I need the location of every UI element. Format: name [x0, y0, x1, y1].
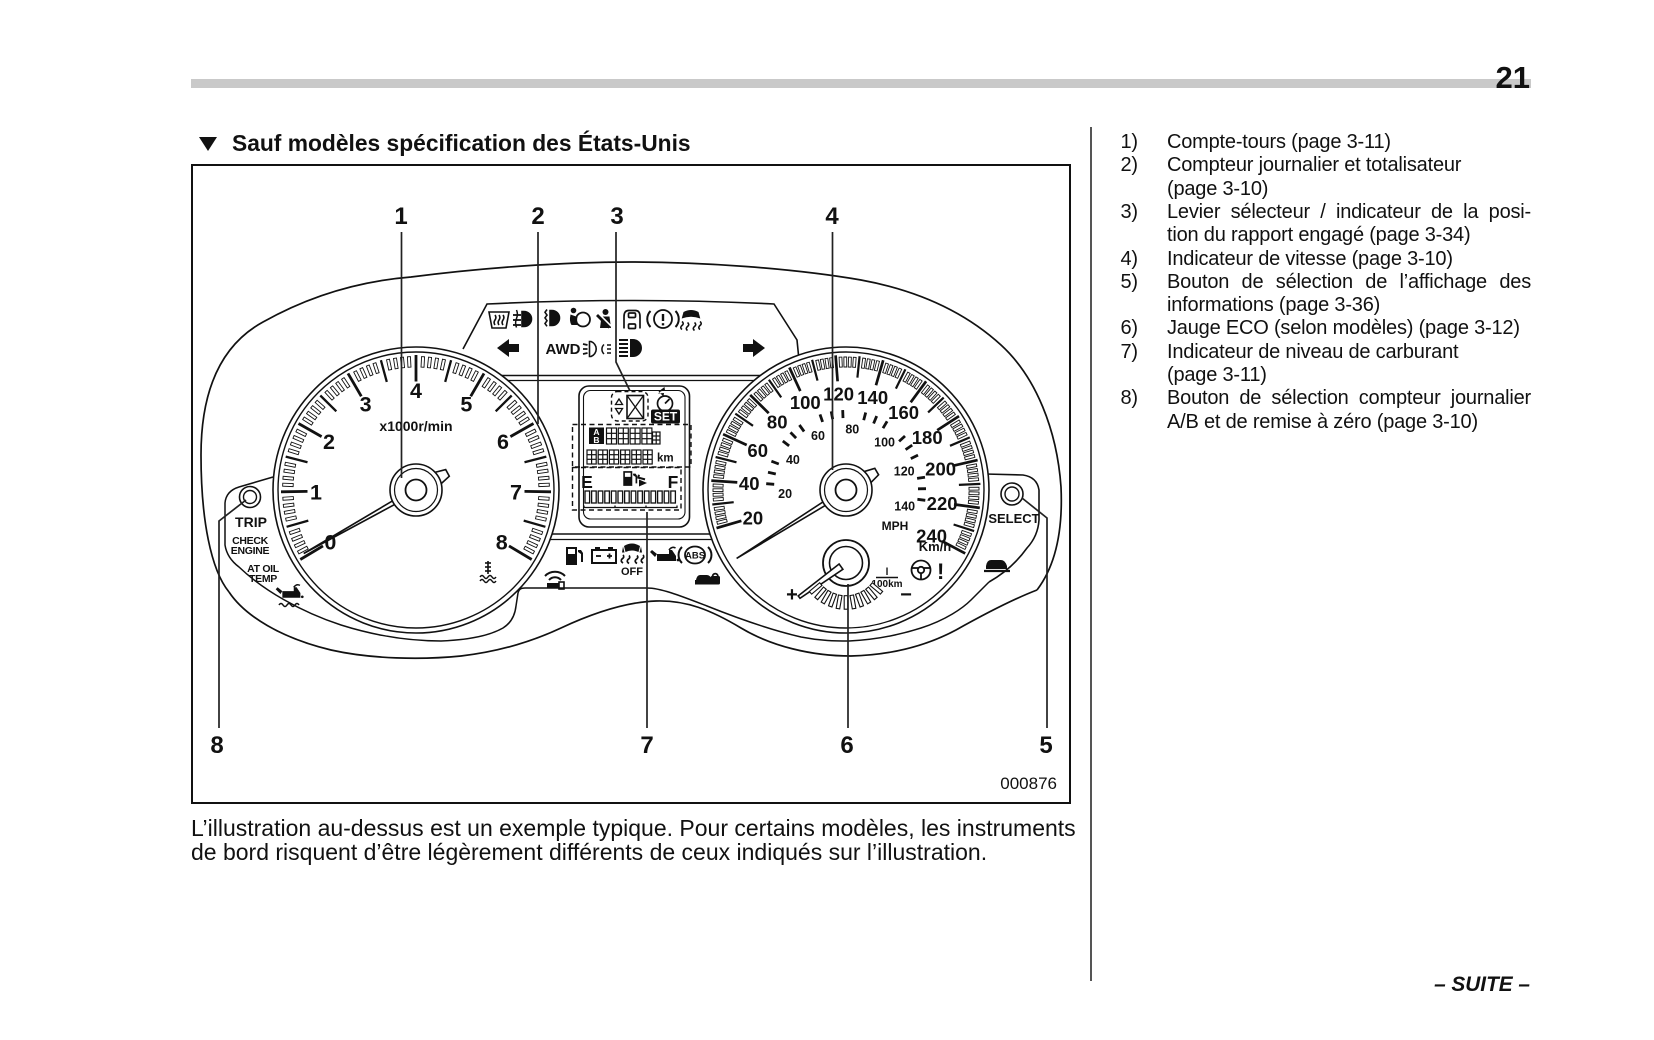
svg-text:F: F [668, 472, 679, 492]
svg-text:E: E [581, 472, 593, 492]
svg-text:0: 0 [324, 531, 336, 555]
svg-text:6: 6 [497, 430, 509, 454]
svg-text:SET: SET [654, 410, 678, 424]
svg-text:200: 200 [925, 459, 956, 480]
svg-text:100: 100 [790, 392, 821, 413]
svg-text:120: 120 [823, 383, 854, 404]
svg-text:2: 2 [531, 203, 544, 230]
svg-text:1: 1 [310, 480, 322, 504]
svg-text:180: 180 [912, 427, 943, 448]
svg-text:ABS: ABS [685, 551, 705, 562]
svg-text:7: 7 [640, 732, 653, 759]
svg-text:80: 80 [767, 412, 788, 433]
svg-text:2: 2 [323, 430, 335, 454]
svg-text:3: 3 [360, 393, 372, 417]
svg-text:60: 60 [811, 429, 825, 443]
svg-text:TRIP: TRIP [235, 514, 267, 530]
svg-text:SELECT: SELECT [988, 511, 1039, 526]
svg-text:140: 140 [857, 387, 888, 408]
svg-text:160: 160 [888, 402, 919, 423]
svg-text:Km/h: Km/h [919, 539, 952, 554]
svg-text:4: 4 [410, 379, 422, 403]
svg-text:5: 5 [1039, 732, 1052, 759]
svg-text:20: 20 [743, 507, 764, 528]
svg-text:3: 3 [610, 203, 623, 230]
svg-text:60: 60 [747, 440, 768, 461]
svg-text:x1000r/min: x1000r/min [379, 418, 452, 434]
svg-text:7: 7 [510, 480, 522, 504]
svg-text:80: 80 [845, 422, 859, 436]
svg-text:120: 120 [894, 465, 915, 479]
svg-text:140: 140 [894, 500, 915, 514]
svg-text:MPH: MPH [882, 519, 909, 533]
svg-text:km: km [657, 453, 674, 465]
svg-text:B: B [593, 435, 599, 445]
svg-text:000876: 000876 [1000, 774, 1057, 793]
svg-text:OFF: OFF [621, 566, 643, 578]
svg-text:−: − [900, 584, 912, 606]
svg-text:40: 40 [786, 453, 800, 467]
svg-text:!: ! [937, 559, 944, 584]
svg-text:4: 4 [825, 203, 839, 230]
svg-text:6: 6 [840, 732, 853, 759]
svg-text:100: 100 [874, 436, 895, 450]
svg-text:20: 20 [778, 487, 792, 501]
svg-text:1: 1 [394, 203, 407, 230]
svg-text:8: 8 [210, 732, 223, 759]
svg-text:8: 8 [496, 531, 508, 555]
svg-text:AWD: AWD [546, 341, 581, 358]
svg-text:40: 40 [739, 473, 760, 494]
svg-text:+: + [786, 584, 798, 606]
svg-text:TEMP: TEMP [249, 573, 277, 585]
svg-text:l: l [886, 567, 889, 578]
svg-text:ENGINE: ENGINE [231, 545, 270, 557]
svg-text:5: 5 [460, 393, 472, 417]
svg-text:220: 220 [927, 493, 958, 514]
